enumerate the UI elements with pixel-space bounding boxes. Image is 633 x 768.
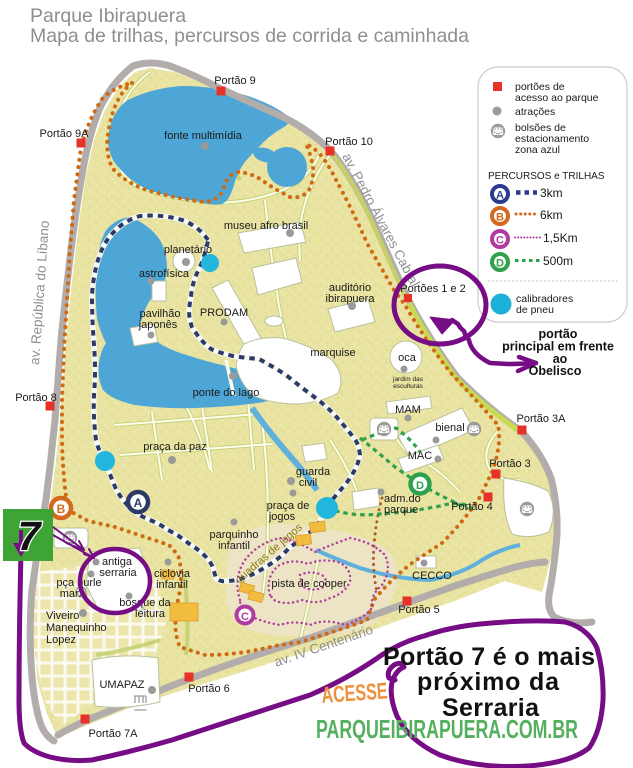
svg-text:CECCO: CECCO	[412, 570, 452, 582]
svg-text:japonês: japonês	[138, 319, 178, 331]
svg-text:Portão 5: Portão 5	[398, 604, 440, 616]
svg-text:zona azul: zona azul	[515, 144, 560, 156]
svg-text:Viveiro: Viveiro	[46, 610, 79, 622]
svg-text:A: A	[496, 190, 504, 202]
svg-text:ponte do lago: ponte do lago	[193, 387, 260, 399]
svg-text:500m: 500m	[543, 254, 573, 268]
svg-text:infantil: infantil	[218, 540, 250, 552]
svg-text:MAC: MAC	[408, 450, 433, 462]
svg-text:infantil: infantil	[156, 579, 188, 591]
svg-text:Portão 7 é o mais: Portão 7 é o mais	[383, 643, 595, 671]
svg-text:Portão 9: Portão 9	[214, 75, 256, 87]
svg-text:parque: parque	[384, 504, 418, 516]
svg-text:Portão 8: Portão 8	[15, 392, 57, 404]
svg-text:7: 7	[18, 513, 43, 559]
svg-text:PARQUEIBIRAPUERA.COM.BR: PARQUEIBIRAPUERA.COM.BR	[316, 714, 578, 744]
svg-text:ibirapuera: ibirapuera	[326, 293, 376, 305]
svg-text:acesso ao parque: acesso ao parque	[515, 92, 599, 104]
svg-text:3km: 3km	[540, 186, 563, 200]
svg-text:6km: 6km	[540, 208, 563, 222]
svg-text:marquise: marquise	[310, 347, 355, 359]
svg-text:D: D	[496, 258, 504, 270]
svg-text:jogos: jogos	[268, 511, 296, 523]
svg-text:museu afro brasil: museu afro brasil	[224, 220, 308, 232]
svg-text:Obelisco: Obelisco	[529, 364, 582, 378]
svg-text:Portão 7A: Portão 7A	[89, 728, 139, 740]
svg-text:esculturas: esculturas	[393, 383, 423, 390]
svg-text:D: D	[416, 480, 424, 492]
svg-text:civil: civil	[299, 477, 317, 489]
svg-text:Portão 4: Portão 4	[451, 501, 493, 513]
svg-text:leitura: leitura	[135, 608, 166, 620]
svg-text:Portão 3A: Portão 3A	[517, 413, 567, 425]
svg-text:Portão 10: Portão 10	[325, 136, 373, 148]
svg-text:Portão 6: Portão 6	[188, 683, 230, 695]
svg-text:Portão 9A: Portão 9A	[40, 128, 90, 140]
svg-text:bienal: bienal	[435, 422, 464, 434]
svg-text:Portão 3: Portão 3	[489, 458, 531, 470]
svg-text:MAM: MAM	[395, 404, 421, 416]
svg-text:oca: oca	[398, 352, 417, 364]
svg-text:C: C	[496, 235, 504, 247]
svg-text:Lopez: Lopez	[46, 634, 76, 646]
svg-text:pista de cooper: pista de cooper	[271, 578, 347, 590]
svg-text:Parque Ibirapuera: Parque Ibirapuera	[30, 5, 186, 27]
svg-text:próximo da: próximo da	[417, 668, 560, 696]
svg-text:Manequinho: Manequinho	[46, 622, 107, 634]
svg-text:B: B	[57, 502, 66, 516]
svg-text:ACESSE: ACESSE	[321, 679, 389, 709]
svg-text:1,5Km: 1,5Km	[543, 231, 578, 245]
svg-text:A: A	[134, 496, 143, 510]
svg-text:praça da paz: praça da paz	[143, 441, 207, 453]
svg-text:atrações: atrações	[515, 106, 555, 118]
svg-text:UMAPAZ: UMAPAZ	[99, 679, 144, 691]
svg-text:jardim das: jardim das	[392, 376, 424, 383]
svg-text:de pneu: de pneu	[516, 304, 554, 316]
svg-text:serraria: serraria	[99, 567, 137, 579]
svg-text:PERCURSOS e TRILHAS: PERCURSOS e TRILHAS	[488, 171, 605, 182]
svg-text:astrofísica: astrofísica	[139, 268, 190, 280]
svg-text:PRODAM: PRODAM	[200, 307, 248, 319]
svg-text:fonte multimídia: fonte multimídia	[164, 130, 243, 142]
svg-text:C: C	[241, 611, 249, 623]
svg-text:planetário: planetário	[164, 244, 212, 256]
svg-text:Mapa de trilhas, percursos de: Mapa de trilhas, percursos de corrida e …	[30, 25, 469, 47]
svg-text:B: B	[496, 212, 504, 224]
